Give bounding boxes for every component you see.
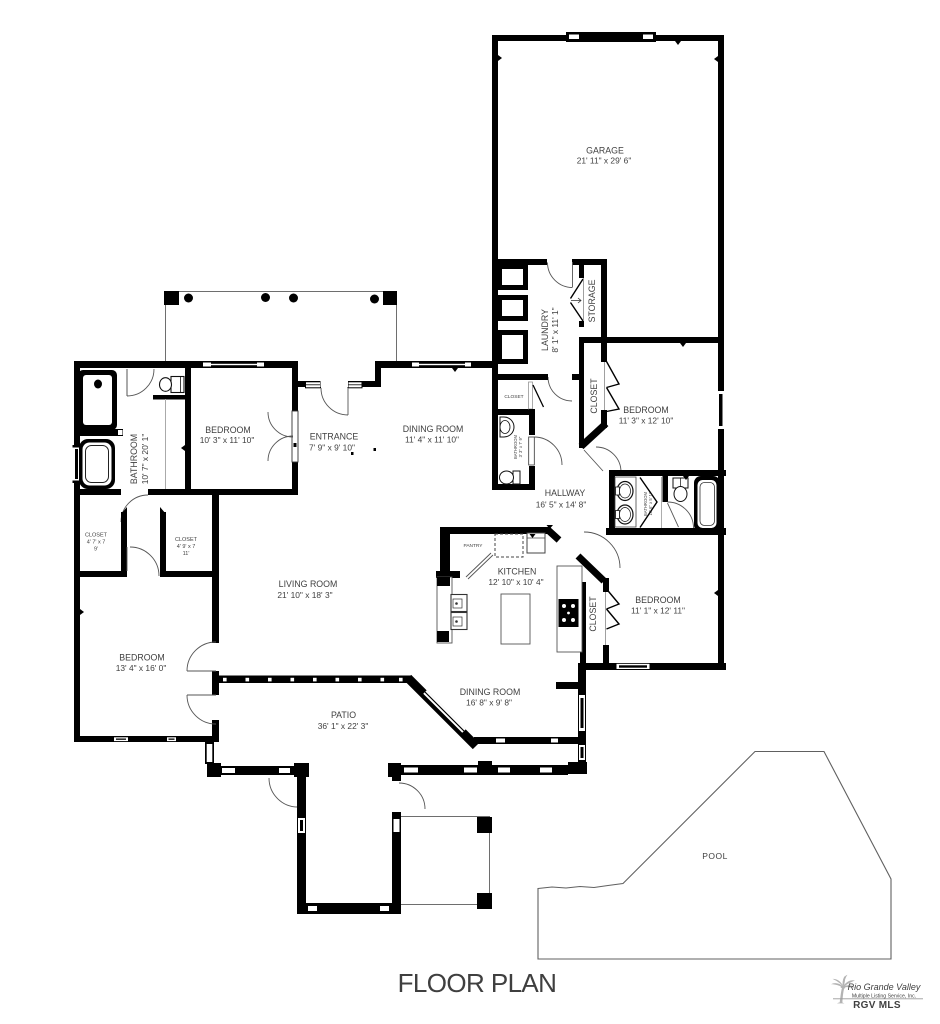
svg-text:Rio Grande Valley: Rio Grande Valley [848,982,921,992]
svg-text:11' 1" x 12' 11": 11' 1" x 12' 11" [631,606,685,616]
svg-text:BEDROOM: BEDROOM [119,653,164,663]
svg-text:7' 9" x 9' 10": 7' 9" x 9' 10" [309,443,355,453]
svg-text:3' 3" x 7' 9": 3' 3" x 7' 9" [518,436,523,457]
svg-text:POOL: POOL [702,851,728,861]
svg-text:ENTRANCE: ENTRANCE [310,432,359,442]
svg-text:16' 5" x 14' 8": 16' 5" x 14' 8" [536,500,587,510]
svg-text:DINING ROOM: DINING ROOM [403,424,464,434]
svg-text:9': 9' [94,547,98,553]
svg-text:FLOOR PLAN: FLOOR PLAN [398,968,557,998]
svg-text:4' 9' x 7: 4' 9' x 7 [177,544,196,550]
svg-text:LIVING ROOM: LIVING ROOM [279,579,338,589]
svg-text:16' 8" x 9' 8": 16' 8" x 9' 8" [466,698,512,708]
svg-text:LAUNDRY: LAUNDRY [540,309,550,351]
svg-text:11' 4" x 11' 10": 11' 4" x 11' 10" [405,435,459,445]
svg-text:10' 6" x 5' 1": 10' 6" x 5' 1" [648,492,653,515]
svg-text:CLOSET: CLOSET [589,378,599,414]
svg-text:CLOSET: CLOSET [85,533,108,539]
svg-text:12' 10" x 10' 4": 12' 10" x 10' 4" [488,577,543,587]
svg-text:KITCHEN: KITCHEN [498,567,537,577]
svg-text:HALLWAY: HALLWAY [545,488,586,498]
svg-text:BEDROOM: BEDROOM [623,405,668,415]
svg-text:PATIO: PATIO [331,710,356,720]
svg-text:11' 3" x 12' 10": 11' 3" x 12' 10" [619,416,674,426]
svg-text:CLOSET: CLOSET [175,537,198,543]
svg-text:BATHROOM: BATHROOM [129,434,139,484]
svg-text:DINING ROOM: DINING ROOM [460,687,521,697]
svg-text:10' 7" x 20' 1": 10' 7" x 20' 1" [140,434,150,485]
svg-text:21' 10" x 18' 3": 21' 10" x 18' 3" [277,590,332,600]
svg-text:PANTRY: PANTRY [463,543,483,549]
svg-text:10' 3" x 11' 10": 10' 3" x 11' 10" [200,435,255,445]
svg-text:BEDROOM: BEDROOM [635,595,680,605]
svg-text:CLOSET: CLOSET [588,596,598,632]
svg-text:36' 1" x 22' 3": 36' 1" x 22' 3" [318,721,369,731]
svg-text:STORAGE: STORAGE [587,279,597,322]
svg-text:13' 4" x 16' 0": 13' 4" x 16' 0" [116,663,167,673]
svg-text:11': 11' [183,551,190,557]
svg-text:RGV MLS: RGV MLS [853,1000,901,1011]
svg-text:BEDROOM: BEDROOM [205,425,250,435]
svg-text:4' 7' x 7: 4' 7' x 7 [87,540,106,546]
svg-text:CLOSET: CLOSET [504,394,523,400]
svg-text:21' 11" x 29' 6": 21' 11" x 29' 6" [577,156,632,166]
svg-text:GARAGE: GARAGE [586,146,624,156]
svg-text:8' 1" x 11' 1": 8' 1" x 11' 1" [550,307,560,352]
